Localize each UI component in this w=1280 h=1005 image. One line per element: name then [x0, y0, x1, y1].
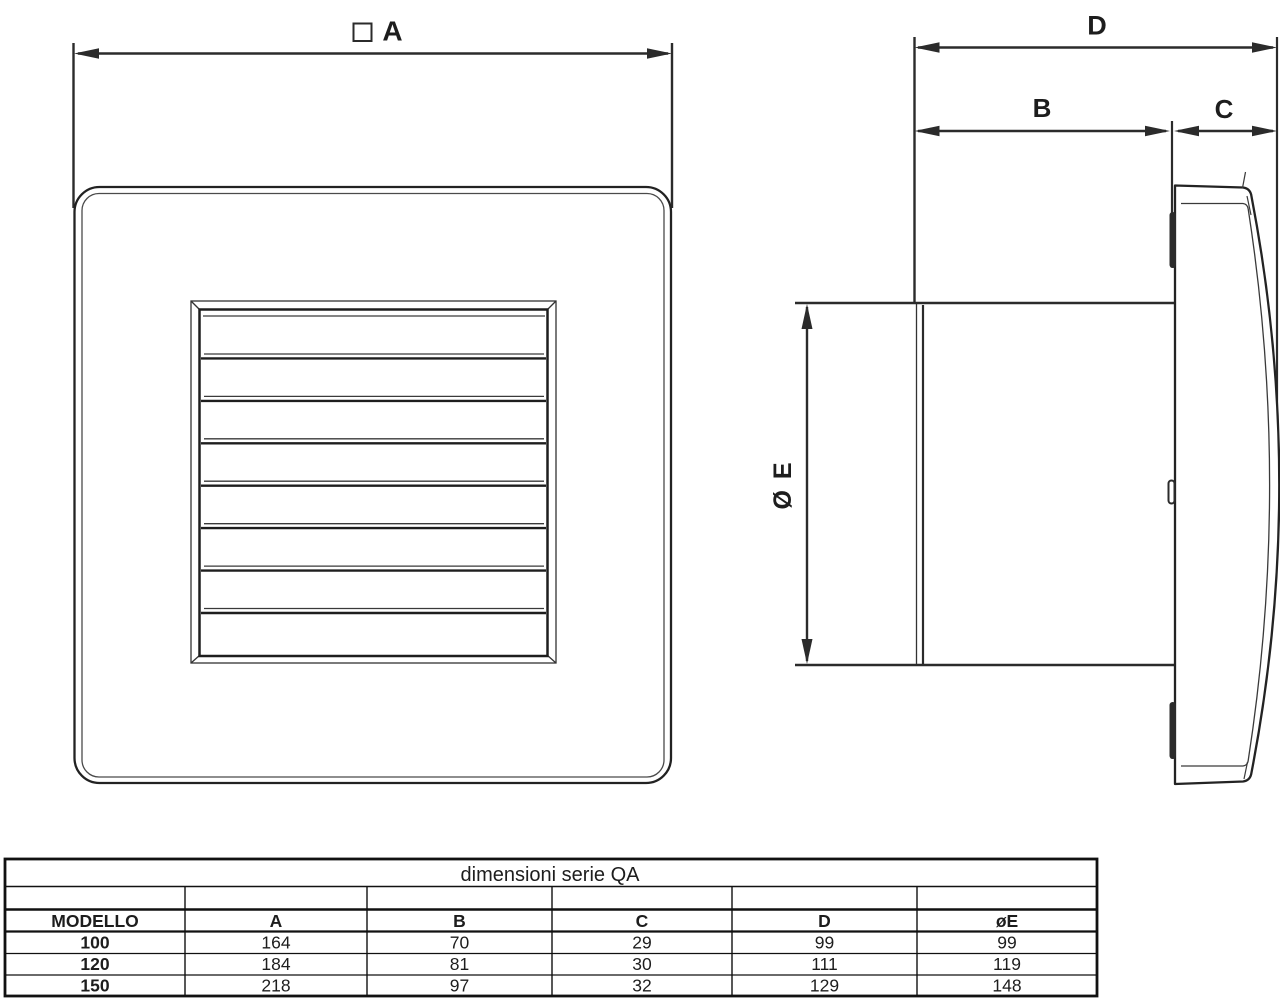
svg-text:MODELLO: MODELLO [51, 911, 139, 931]
svg-text:120: 120 [80, 954, 109, 974]
svg-text:184: 184 [261, 954, 290, 974]
svg-text:129: 129 [810, 976, 839, 996]
svg-text:B: B [453, 911, 466, 931]
svg-text:A: A [270, 911, 283, 931]
svg-text:D: D [818, 911, 831, 931]
svg-text:150: 150 [80, 976, 109, 996]
svg-text:100: 100 [80, 933, 109, 953]
svg-text:81: 81 [450, 954, 469, 974]
svg-text:97: 97 [450, 976, 469, 996]
svg-text:70: 70 [450, 933, 470, 953]
svg-text:119: 119 [993, 954, 1021, 974]
svg-text:øE: øE [996, 911, 1018, 931]
svg-text:dimensioni serie QA: dimensioni serie QA [461, 864, 641, 886]
svg-text:C: C [1215, 94, 1234, 124]
svg-text:A: A [382, 16, 402, 47]
svg-text:Ø E: Ø E [769, 460, 797, 509]
svg-text:B: B [1033, 93, 1052, 123]
svg-text:99: 99 [815, 933, 834, 953]
svg-text:218: 218 [261, 976, 290, 996]
svg-text:30: 30 [632, 954, 652, 974]
svg-text:148: 148 [992, 976, 1021, 996]
svg-text:99: 99 [997, 933, 1016, 953]
svg-text:111: 111 [811, 954, 838, 974]
svg-text:29: 29 [632, 933, 651, 953]
svg-text:D: D [1087, 11, 1107, 41]
svg-text:C: C [636, 911, 649, 931]
svg-text:164: 164 [261, 933, 290, 953]
svg-text:32: 32 [632, 976, 651, 996]
